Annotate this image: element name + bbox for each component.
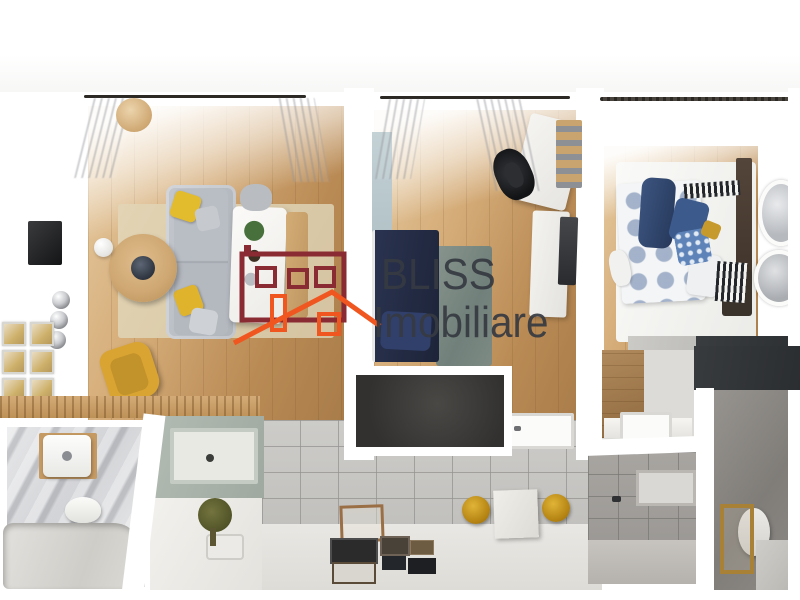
bathroom-right-shower (588, 452, 698, 584)
rattan-pendant-lamp (116, 98, 152, 132)
bathroom-right-wc (712, 390, 800, 590)
dining-chair (240, 184, 272, 211)
yellow-knob-left (462, 496, 490, 524)
pendant-sphere-1 (52, 291, 70, 309)
dark-wall-panel (356, 375, 504, 447)
gallery-wall (2, 322, 54, 406)
navy-folded-blanket (638, 177, 677, 249)
potted-plant (194, 498, 234, 548)
dark-wall-band (694, 346, 800, 390)
navy-daybed (372, 230, 439, 362)
white-box (493, 489, 539, 539)
gold-frame (720, 504, 754, 574)
bedroom-curtain-rod (600, 97, 792, 101)
bath-faucet (62, 451, 72, 461)
dining-bench (286, 212, 308, 318)
gray-pillow (194, 205, 221, 232)
shelf-unit (556, 120, 582, 188)
bottom-white-band (0, 590, 800, 600)
kitchen-countertop (0, 396, 260, 418)
wall-niche (636, 470, 696, 506)
wall-right-bathrooms (696, 388, 714, 600)
table-plant (244, 221, 265, 242)
office-shower-tray (505, 413, 574, 449)
frames-cluster (330, 534, 456, 580)
striped-throw-right (715, 261, 748, 303)
coffee-table (109, 234, 177, 302)
light-pillow (188, 307, 219, 336)
floor-lamp-sphere (94, 238, 113, 257)
office-wall-tv (558, 217, 578, 286)
bathtub (3, 523, 143, 589)
wall-bedroom-right (788, 88, 800, 600)
yellow-knob-right (542, 494, 570, 522)
ceiling-band (0, 0, 800, 92)
sage-cabinet (148, 416, 264, 498)
dark-wall-panel-frame (348, 366, 512, 456)
bath-toilet (65, 497, 101, 523)
teal-rug (436, 246, 492, 366)
wall-tv (28, 221, 62, 265)
apartment-render: BLISS Imobiliare (0, 0, 800, 600)
dining-table (229, 206, 287, 324)
